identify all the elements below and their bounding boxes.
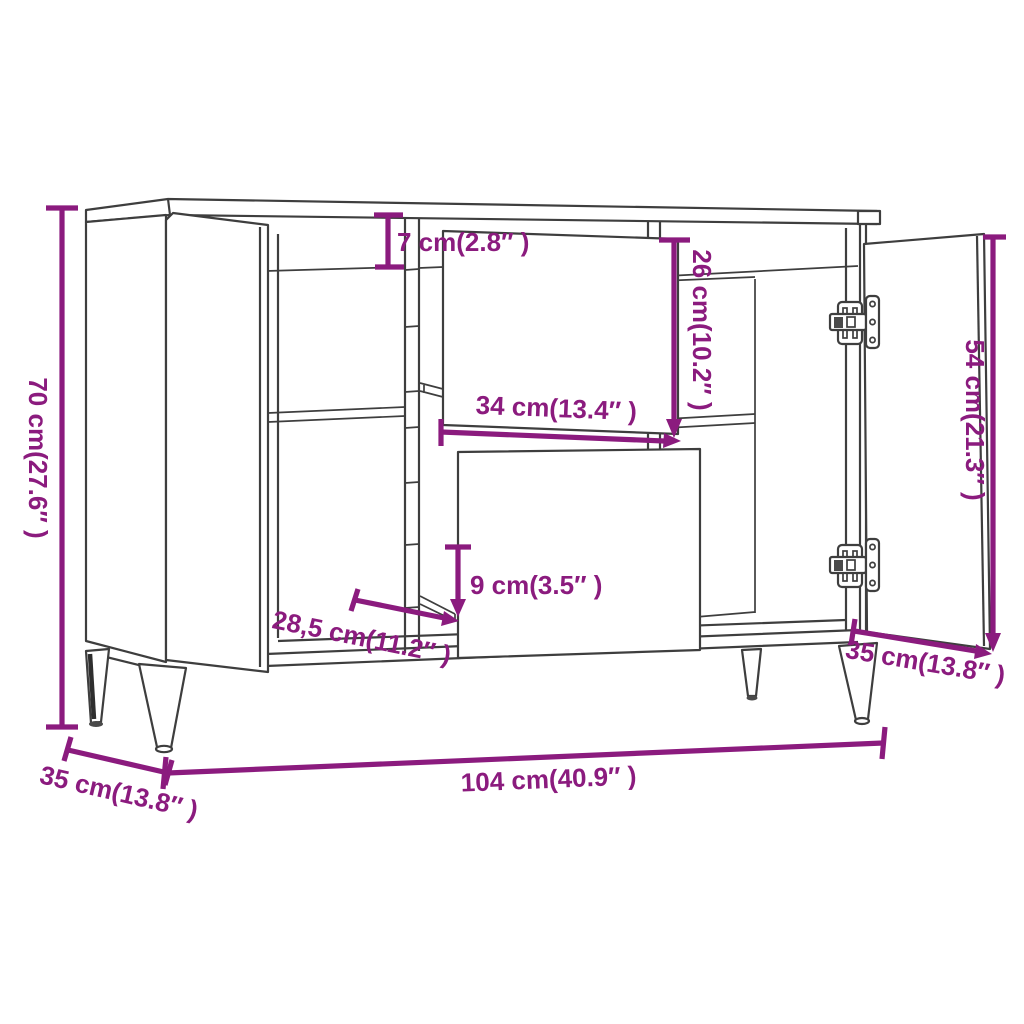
dim-overall-width-label: 104 cm(40.9″ ) <box>460 760 637 797</box>
drawer-column <box>405 216 419 653</box>
left-door <box>166 213 268 672</box>
product-dimension-image: 70 cm(27.6″ ) 7 cm(2.8″ ) 26 cm(10.2″ ) … <box>0 0 1024 1024</box>
leg-back-left <box>86 649 109 727</box>
dim-top-drawer-label: 7 cm(2.8″ ) <box>397 227 529 257</box>
hinge-door-plate <box>866 539 879 591</box>
drawer-runner-ticks <box>405 269 419 608</box>
dim-overall-depth: 35 cm(13.8″ ) <box>37 737 201 825</box>
leg-back-right <box>742 649 761 701</box>
leg-front-left <box>139 664 186 752</box>
left-side-panel <box>86 215 166 662</box>
dim-overall-height-label: 70 cm(27.6″ ) <box>23 377 53 538</box>
top-panel-end-cap <box>858 211 880 224</box>
top-drawer-row-right <box>648 266 858 277</box>
dim-drawer-height-label: 26 cm(10.2″ ) <box>687 249 717 410</box>
hinge-top <box>830 296 879 348</box>
hinge-bottom <box>830 539 879 591</box>
dim-bottom-gap-label: 9 cm(3.5″ ) <box>470 570 602 600</box>
shelf-left <box>268 407 405 422</box>
dim-overall-width: 104 cm(40.9″ ) <box>163 727 885 798</box>
dim-overall-depth-label: 35 cm(13.8″ ) <box>37 759 201 825</box>
hinge-door-plate <box>866 296 879 348</box>
drawer-slide-upper <box>420 383 443 397</box>
sideboard-dimension-diagram: 70 cm(27.6″ ) 7 cm(2.8″ ) 26 cm(10.2″ ) … <box>0 0 1024 1024</box>
lower-drawer-front <box>458 449 700 658</box>
dim-door-height-label: 54 cm(21.3″ ) <box>960 339 990 500</box>
dim-overall-height: 70 cm(27.6″ ) <box>23 208 78 727</box>
